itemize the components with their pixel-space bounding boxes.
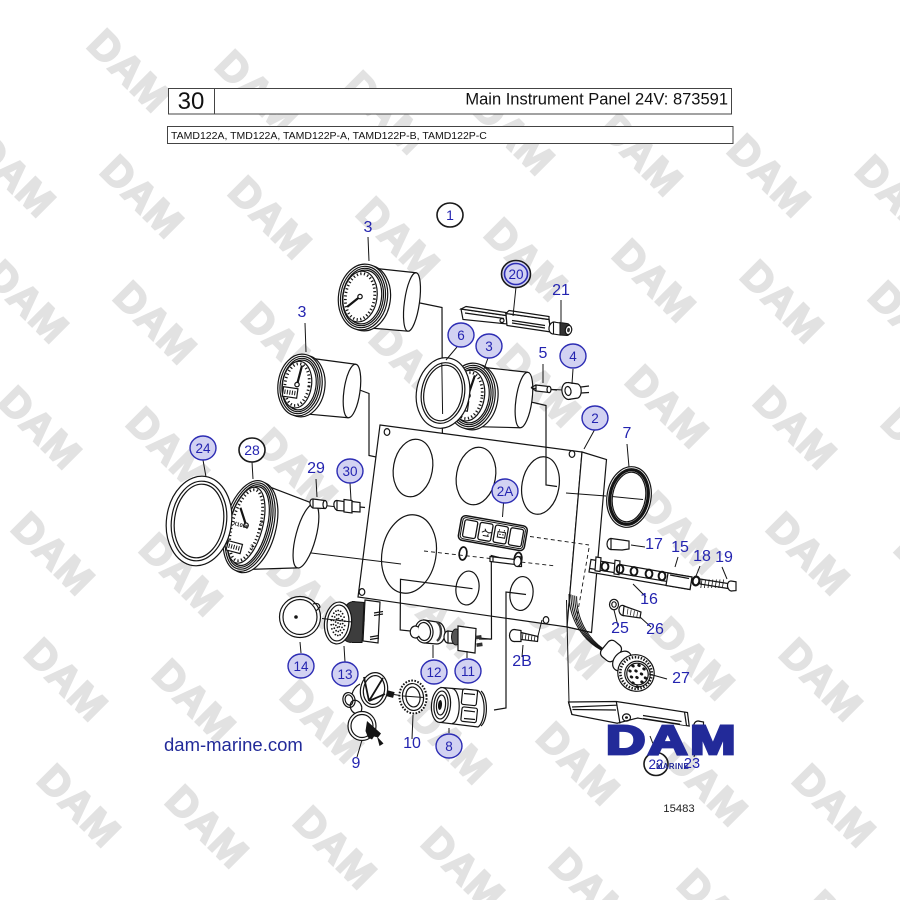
svg-text:20: 20 [508,267,523,282]
svg-text:21: 21 [552,282,570,299]
svg-text:5: 5 [539,345,548,362]
svg-text:15483: 15483 [663,803,694,815]
svg-text:15: 15 [671,539,689,556]
svg-text:26: 26 [646,621,664,638]
svg-text:TAMD122A, TMD122A, TAMD122P-A,: TAMD122A, TMD122A, TAMD122P-A, TAMD122P-… [171,130,487,142]
svg-text:11: 11 [461,664,475,679]
svg-text:2B: 2B [512,653,532,670]
svg-text:16: 16 [640,591,658,608]
svg-text:17: 17 [645,536,663,553]
svg-text:12: 12 [426,665,441,680]
svg-text:9: 9 [352,755,361,772]
svg-text:30: 30 [342,464,357,479]
svg-text:6: 6 [457,328,465,343]
svg-text:4: 4 [569,349,577,364]
svg-text:29: 29 [307,460,325,477]
svg-text:DAM: DAM [606,717,738,763]
svg-text:28: 28 [244,442,260,458]
svg-text:18: 18 [693,548,711,565]
svg-text:3: 3 [485,339,493,354]
svg-text:8: 8 [445,739,453,754]
svg-text:13: 13 [337,667,352,682]
svg-text:2A: 2A [497,484,514,499]
svg-text:24: 24 [195,441,211,456]
svg-text:14: 14 [293,659,309,674]
svg-text:27: 27 [672,670,690,687]
svg-text:25: 25 [611,620,629,637]
svg-text:19: 19 [715,549,733,566]
svg-text:10: 10 [403,735,421,752]
svg-text:3: 3 [364,219,373,236]
svg-text:30: 30 [178,88,205,115]
svg-text:3: 3 [298,304,307,321]
svg-text:Main Instrument Panel 24V: 873: Main Instrument Panel 24V: 873591 [465,91,728,109]
svg-text:1: 1 [446,207,454,223]
svg-text:MARINE: MARINE [656,762,689,771]
svg-text:dam-marine.com: dam-marine.com [164,734,303,755]
svg-text:7: 7 [623,425,632,442]
svg-text:2: 2 [591,411,599,426]
